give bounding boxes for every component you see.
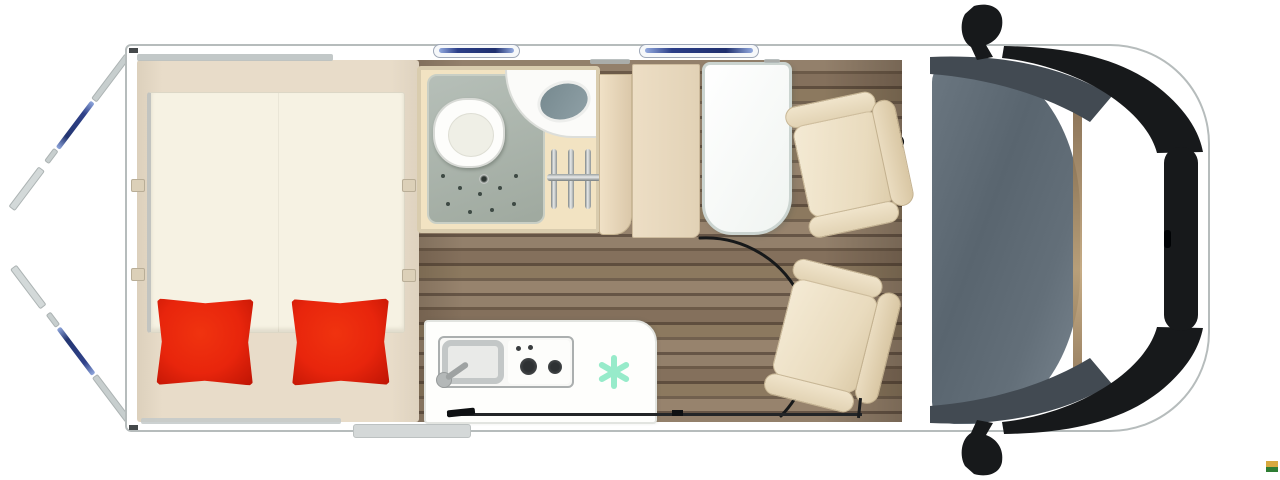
rear-door-edge xyxy=(8,166,44,211)
bed-frame-bracket xyxy=(131,179,145,192)
rear-door-panel xyxy=(46,312,60,328)
bed-frame-bracket xyxy=(402,269,416,282)
logo-stripe-green xyxy=(1266,467,1278,473)
rear-corner-mark xyxy=(129,48,138,53)
wardrobe-cabinet xyxy=(632,64,700,238)
rear-door-window-glass xyxy=(57,327,96,376)
brand-logo-mark xyxy=(1266,461,1278,472)
roof-trim xyxy=(137,54,333,61)
toilet xyxy=(433,98,505,168)
tray-anti-slip-dots xyxy=(441,174,445,178)
rear-door-top-open xyxy=(6,52,131,214)
dashboard-edge xyxy=(1073,98,1082,386)
floorplan-canvas xyxy=(0,0,1280,480)
roof-trim xyxy=(590,59,630,64)
sink-hob-module xyxy=(438,336,574,388)
awning-window-2 xyxy=(639,44,759,58)
awning-window-1 xyxy=(433,44,520,58)
bathroom-area xyxy=(417,66,600,233)
bed-frame-bracket xyxy=(131,268,145,281)
rear-door-bottom-open xyxy=(7,262,132,424)
dinette-table xyxy=(702,62,792,235)
rear-door-window-glass xyxy=(56,101,95,150)
rear-corner-mark xyxy=(129,425,138,430)
hob-burner-large xyxy=(520,358,537,375)
sill-trim xyxy=(141,418,341,424)
hob-burner-small xyxy=(548,360,562,374)
van-body-outline xyxy=(125,44,1210,432)
windshield xyxy=(932,60,1080,424)
bed-mattress xyxy=(147,92,405,333)
toilet-seat xyxy=(448,113,494,157)
rear-door-panel xyxy=(44,148,58,164)
window-glass xyxy=(439,48,514,53)
roof-trim xyxy=(764,59,780,63)
hob-knob xyxy=(516,346,521,351)
tall-cabinet xyxy=(599,74,632,235)
hob-knob xyxy=(528,345,533,350)
window-glass xyxy=(645,48,753,53)
sliding-door-rail xyxy=(447,413,862,416)
pillow-left xyxy=(157,299,254,386)
rail-roller-mark xyxy=(672,410,683,416)
fridge-snowflake-icon xyxy=(596,354,632,390)
rear-door-edge xyxy=(10,265,46,310)
shower-rail-crossbar xyxy=(547,174,601,181)
shower-drain xyxy=(479,174,489,184)
bed-frame-bracket xyxy=(402,179,416,192)
entry-step xyxy=(353,424,471,438)
pillow-right xyxy=(292,299,390,386)
two-burner-hob xyxy=(508,340,570,384)
